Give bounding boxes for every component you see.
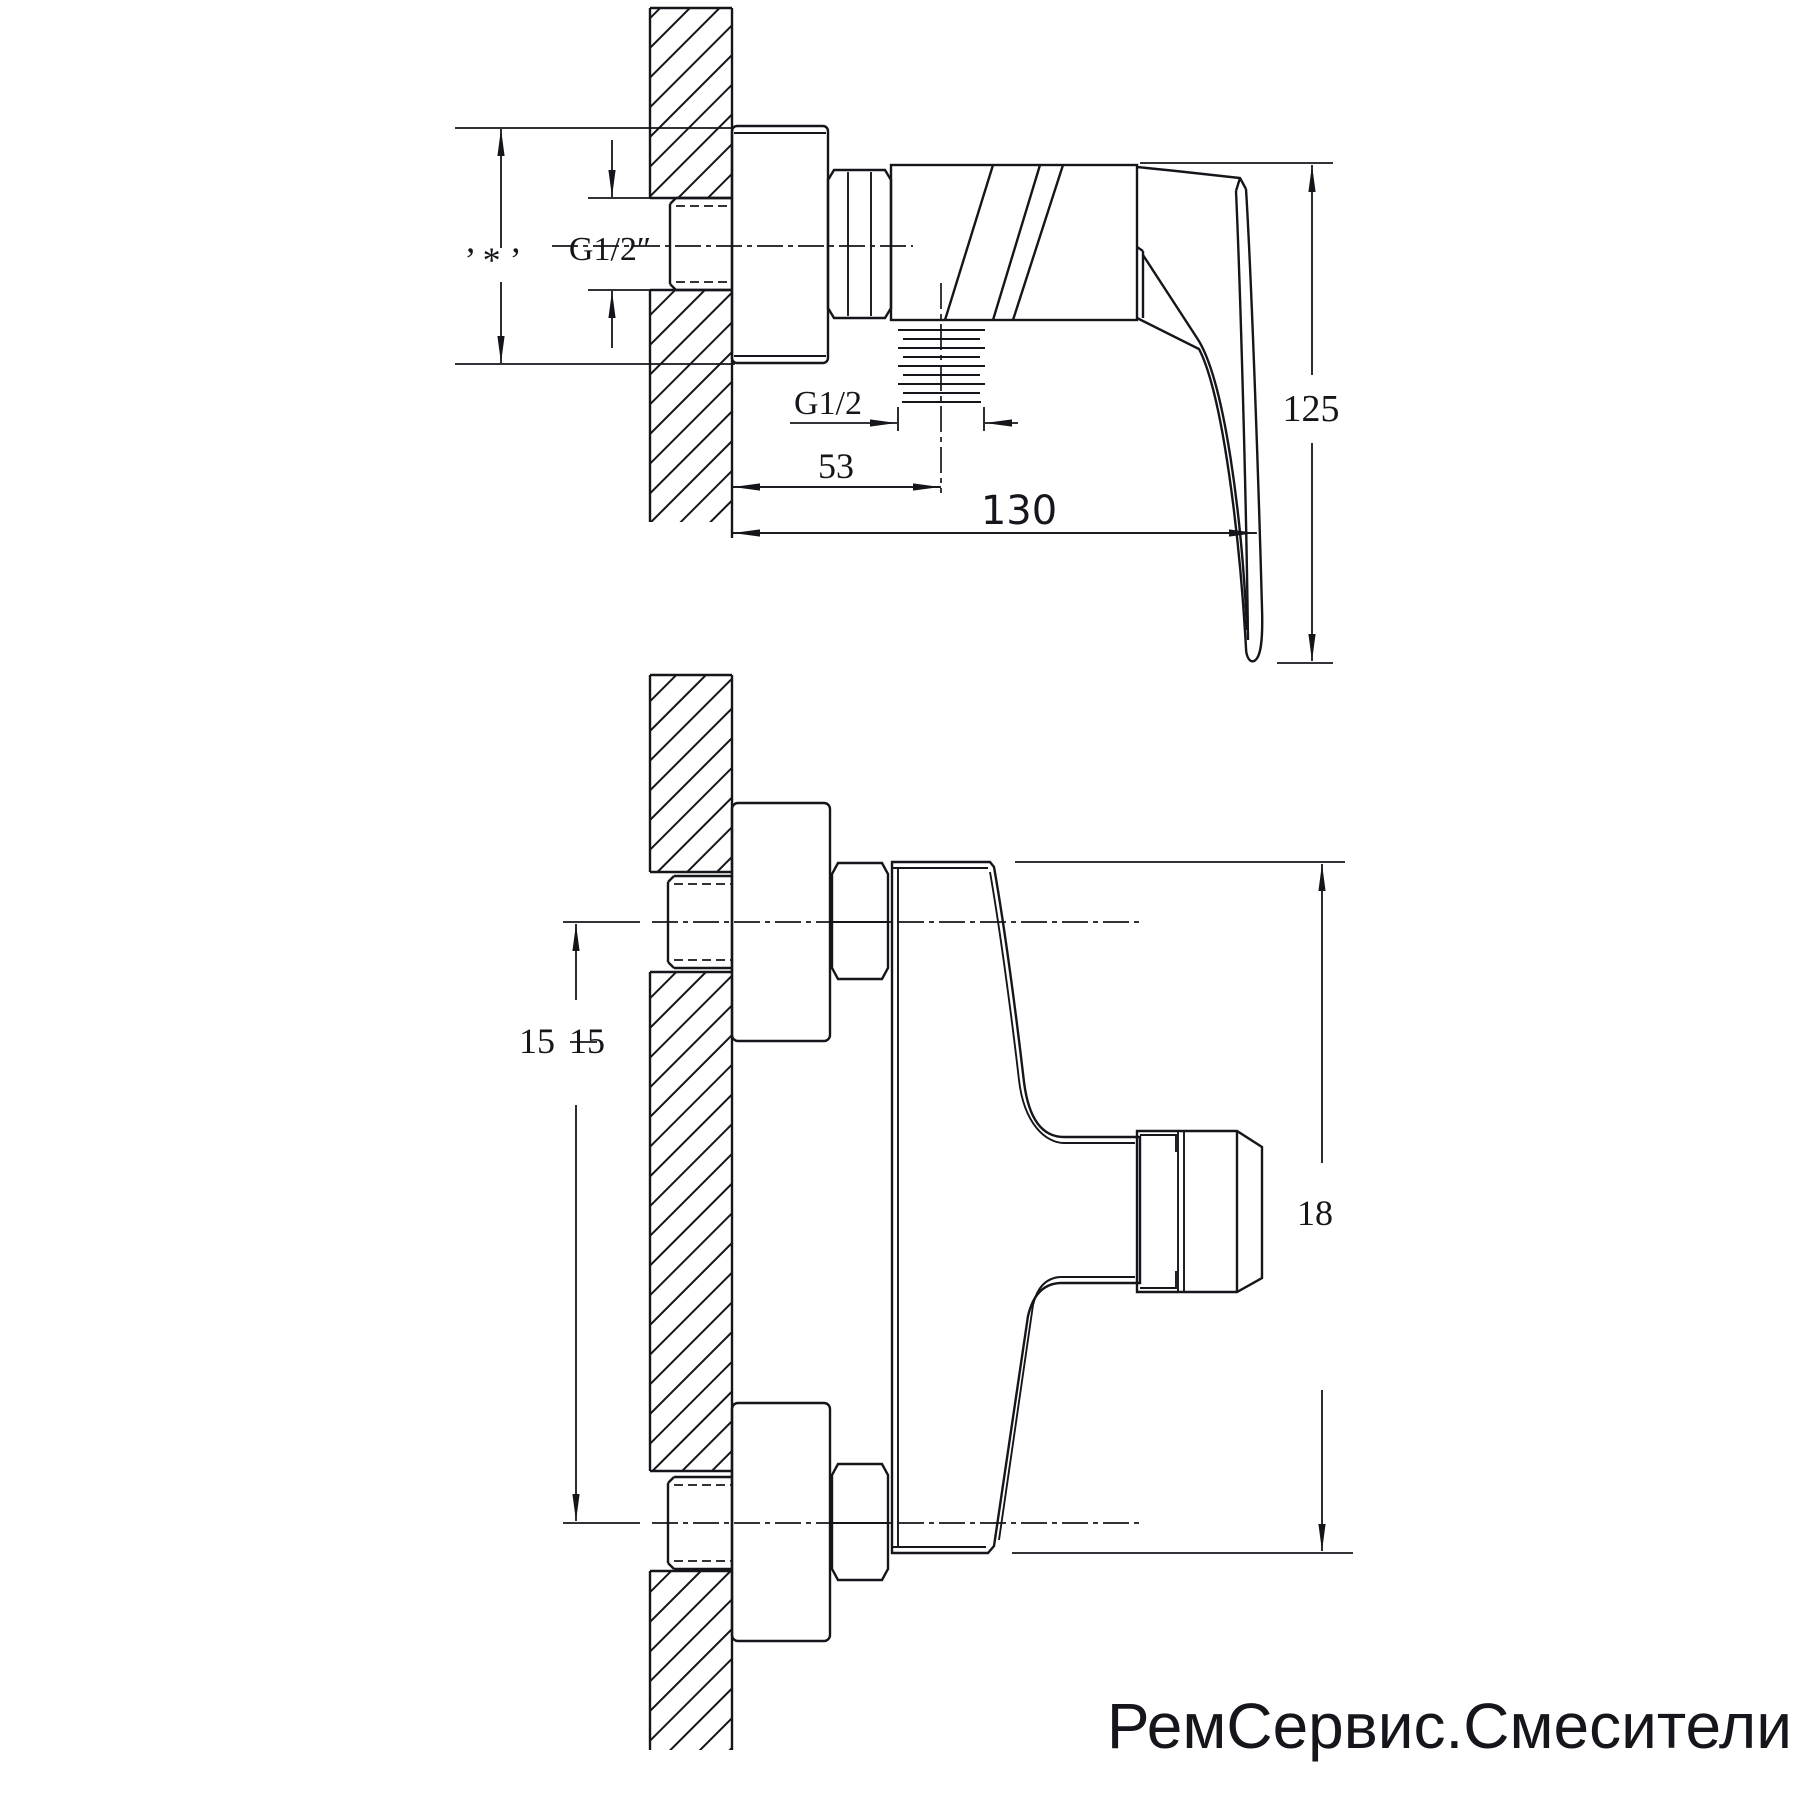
dimension-150-label-left: 15 [519, 1021, 555, 1061]
wall-pipe [670, 198, 732, 290]
wall-section-icon [650, 675, 732, 1750]
dimension-53-label: 53 [818, 446, 854, 486]
lower-hex-nut [832, 1464, 888, 1580]
dimension-outlet-thread-label: G1/2 [794, 385, 862, 422]
watermark-text: РемСервис.Смесители [1107, 1690, 1792, 1762]
dimension-wall-thread: G1/2″ [569, 140, 652, 348]
dimension-star-label: ’ * ’ [464, 240, 521, 280]
dimension-53: 53 [732, 446, 941, 487]
dimension-wall-thread-label: G1/2″ [569, 231, 651, 268]
upper-hex-nut [832, 863, 888, 979]
mounting-flange [732, 126, 828, 363]
dimension-180-label: 18 [1297, 1193, 1333, 1233]
dimension-outlet-thread: G1/2 [790, 385, 1018, 431]
dimension-130-label: 130 [981, 488, 1057, 534]
technical-drawing: ’ * ’ G1/2″ G1/2 53 130 [0, 0, 1800, 1800]
top-view: ’ * ’ G1/2″ G1/2 53 130 [455, 8, 1340, 663]
dimension-125: 125 [1140, 163, 1340, 663]
dimension-150: 15 15 [519, 922, 640, 1523]
lower-mounting-flange [732, 1403, 830, 1641]
mixer-body-rear [892, 862, 1140, 1553]
mixer-body [891, 165, 1143, 320]
hex-nut [828, 170, 891, 318]
dimension-180: 18 [1012, 862, 1353, 1553]
bottom-view: 15 15 18 [519, 675, 1353, 1750]
drawing-page: ’ * ’ G1/2″ G1/2 53 130 [0, 0, 1800, 1800]
lever-knob-rear [1137, 1131, 1262, 1292]
wall-section-icon [650, 8, 732, 538]
dimension-150-label-right: 15 [569, 1021, 605, 1061]
lever-handle [1137, 167, 1262, 661]
dimension-130: 130 [732, 488, 1257, 534]
dimension-125-label: 125 [1283, 388, 1340, 430]
